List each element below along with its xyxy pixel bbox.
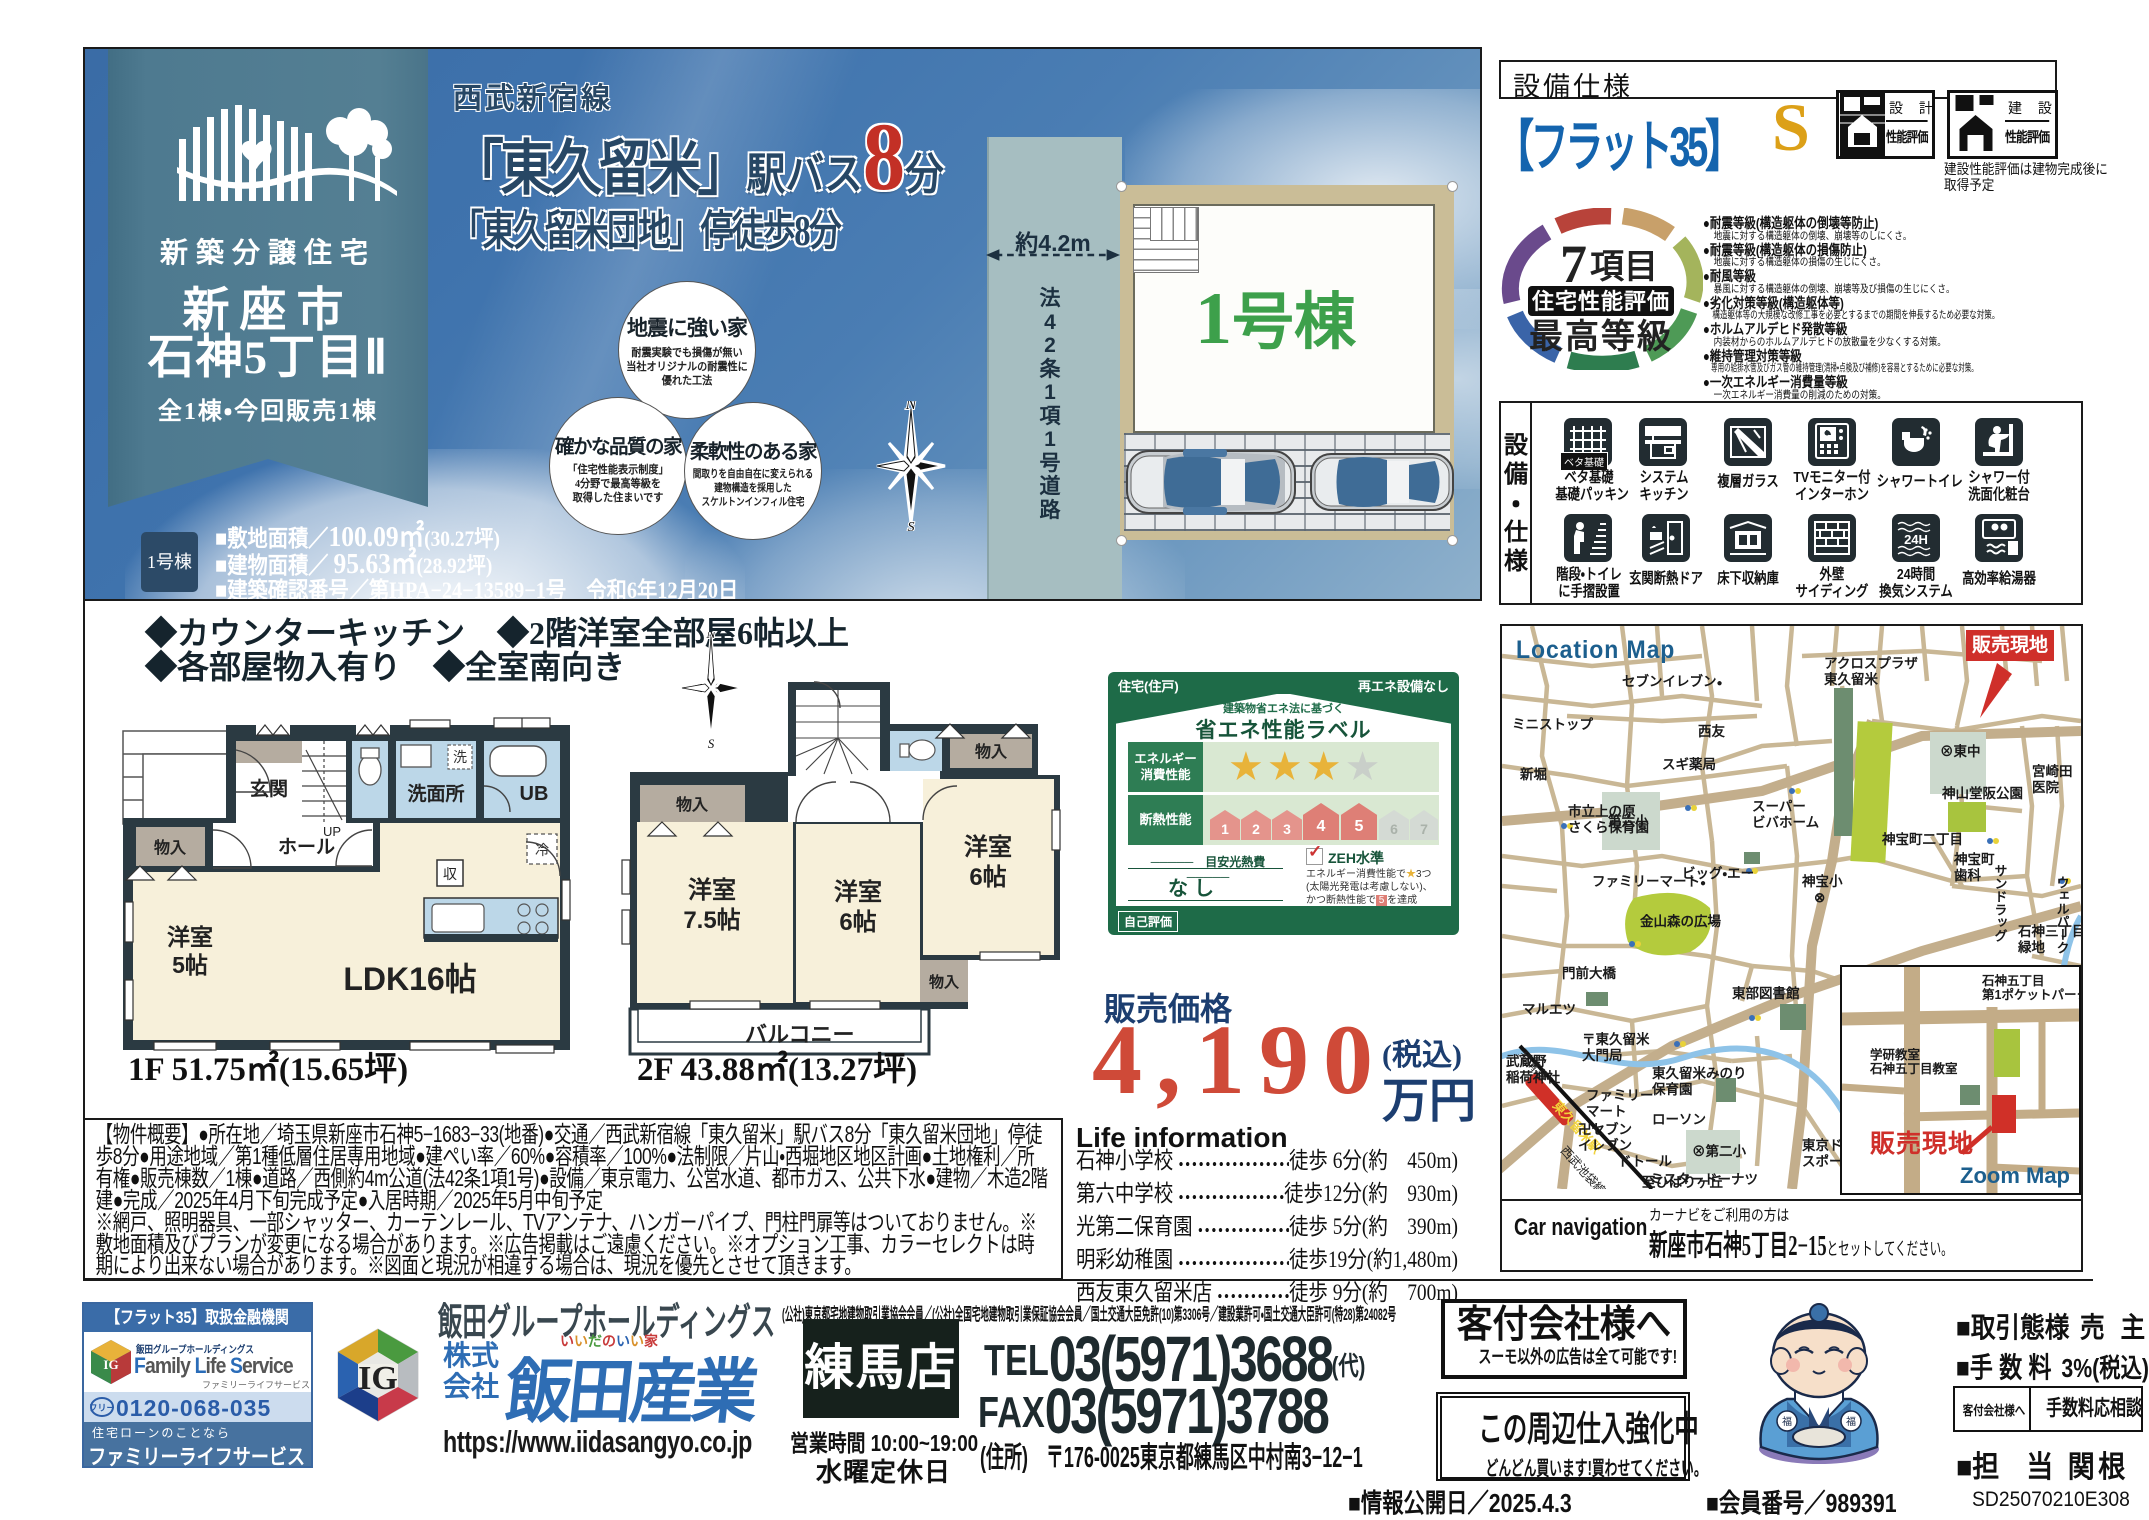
svg-text:武蔵野: 武蔵野 [1506,1053,1547,1069]
svg-text:UP: UP [323,824,341,839]
svg-text:ビバホーム: ビバホーム [1752,815,1819,830]
svg-text:UB: UB [520,783,549,805]
svg-text:フリー: フリー [90,1403,114,1413]
svg-text:洗: 洗 [453,749,467,765]
svg-text:神山堂阪公園: 神山堂阪公園 [1941,785,2023,801]
svg-text:最高等級: 最高等級 [1529,318,1673,356]
svg-text:サンドラッグ: サンドラッグ [1993,864,2008,942]
svg-text:物入: 物入 [975,742,1007,761]
svg-text:洋室: 洋室 [688,876,736,904]
svg-text:N: N [705,632,716,642]
svg-text:アクロスプラザ: アクロスプラザ [1824,656,1918,671]
svg-text:ミニストップ: ミニストップ [1512,717,1593,732]
svg-text:⊗: ⊗ [1814,890,1825,905]
svg-text:西友: 西友 [1698,723,1726,739]
svg-text:スーパー: スーパー [1752,799,1806,814]
svg-text:スギ薬局: スギ薬局 [1662,756,1716,772]
svg-text:石神三丁目: 石神三丁目 [2017,923,2081,939]
svg-text:7.5帖: 7.5帖 [683,907,740,934]
svg-text:石神五丁目教室: 石神五丁目教室 [1869,1061,1958,1076]
svg-text:収: 収 [443,866,457,882]
svg-text:ドトール: ドトール [1618,1154,1672,1169]
svg-text:〒東久留米: 〒東久留米 [1582,1031,1650,1047]
svg-text:イレブン: イレブン [1578,1137,1632,1153]
svg-text:神宝町: 神宝町 [1953,851,1995,867]
svg-text:神宝小: 神宝小 [1801,873,1843,889]
svg-text:学研教室: 学研教室 [1870,1047,1921,1062]
svg-text:物入: 物入 [676,795,708,814]
svg-text:ファミリーマート●: ファミリーマート● [1592,874,1706,889]
svg-text:石神五丁目: 石神五丁目 [1981,973,2045,988]
svg-text:物入: 物入 [929,973,959,991]
svg-text:ウェルパーク: ウェルパーク [2055,876,2070,954]
svg-text:大門局: 大門局 [1582,1047,1623,1063]
svg-text:24H: 24H [1904,532,1928,547]
svg-text:N: N [905,401,918,413]
svg-text:福: 福 [1782,1415,1792,1428]
svg-text:医院: 医院 [2032,779,2060,795]
svg-text:6帖: 6帖 [839,909,876,936]
svg-text:Zoom Map: Zoom Map [1960,1163,2070,1188]
svg-text:東久留米みのり: 東久留米みのり [1652,1065,1747,1081]
svg-text:物入: 物入 [154,838,186,857]
svg-text:ローソン: ローソン [1652,1112,1706,1127]
svg-text:至ひばりヶ丘: 至ひばりヶ丘 [1642,1175,1723,1189]
svg-text:福: 福 [1846,1415,1856,1428]
svg-text:販売現地: 販売現地 [1870,1130,1974,1158]
svg-text:第六小: 第六小 [1608,813,1649,829]
svg-text:東部図書館: 東部図書館 [1732,985,1800,1001]
svg-text:稲荷神社: 稲荷神社 [1506,1069,1560,1085]
svg-text:項目: 項目 [1590,249,1658,286]
svg-text:5帖: 5帖 [172,952,208,978]
svg-text:洋室: 洋室 [834,878,882,906]
svg-text:IG: IG [103,1357,118,1372]
svg-text:卍セブン: 卍セブン [1578,1121,1632,1137]
svg-text:S: S [908,520,915,531]
svg-text:東久留米: 東久留米 [1824,671,1878,687]
svg-text:IG: IG [358,1360,398,1397]
svg-text:歯科: 歯科 [1954,867,1982,883]
svg-text:洋室: 洋室 [964,833,1012,861]
svg-text:6帖: 6帖 [969,864,1006,891]
svg-text:住宅性能評価: 住宅性能評価 [1531,289,1670,314]
svg-text:LDK16帖: LDK16帖 [343,961,476,997]
svg-text:保育園: 保育園 [1651,1081,1693,1097]
svg-text:マルエツ: マルエツ [1522,1002,1576,1017]
svg-text:第1ポケットパーク: 第1ポケットパーク [1981,987,2079,1002]
svg-text:神宝町二丁目: 神宝町二丁目 [1881,831,1963,847]
svg-text:洋室: 洋室 [167,924,213,950]
svg-text:⊗第二小: ⊗第二小 [1692,1143,1746,1159]
svg-text:新堀: 新堀 [1519,766,1547,782]
svg-text:⊗東中: ⊗東中 [1940,743,1981,759]
svg-text:金山森の広場: 金山森の広場 [1640,913,1721,929]
svg-text:門前大橋: 門前大橋 [1562,965,1616,981]
svg-text:洗面所: 洗面所 [407,782,464,805]
svg-text:マート: マート [1586,1104,1627,1119]
svg-text:ファミリー: ファミリー [1586,1088,1654,1103]
svg-text:セブンイレブン●: セブンイレブン● [1622,673,1723,689]
svg-text:緑地: 緑地 [2017,939,2046,955]
svg-text:ホール: ホール [278,837,335,858]
svg-text:7: 7 [1560,234,1587,294]
svg-text:宮崎田: 宮崎田 [2032,763,2073,779]
